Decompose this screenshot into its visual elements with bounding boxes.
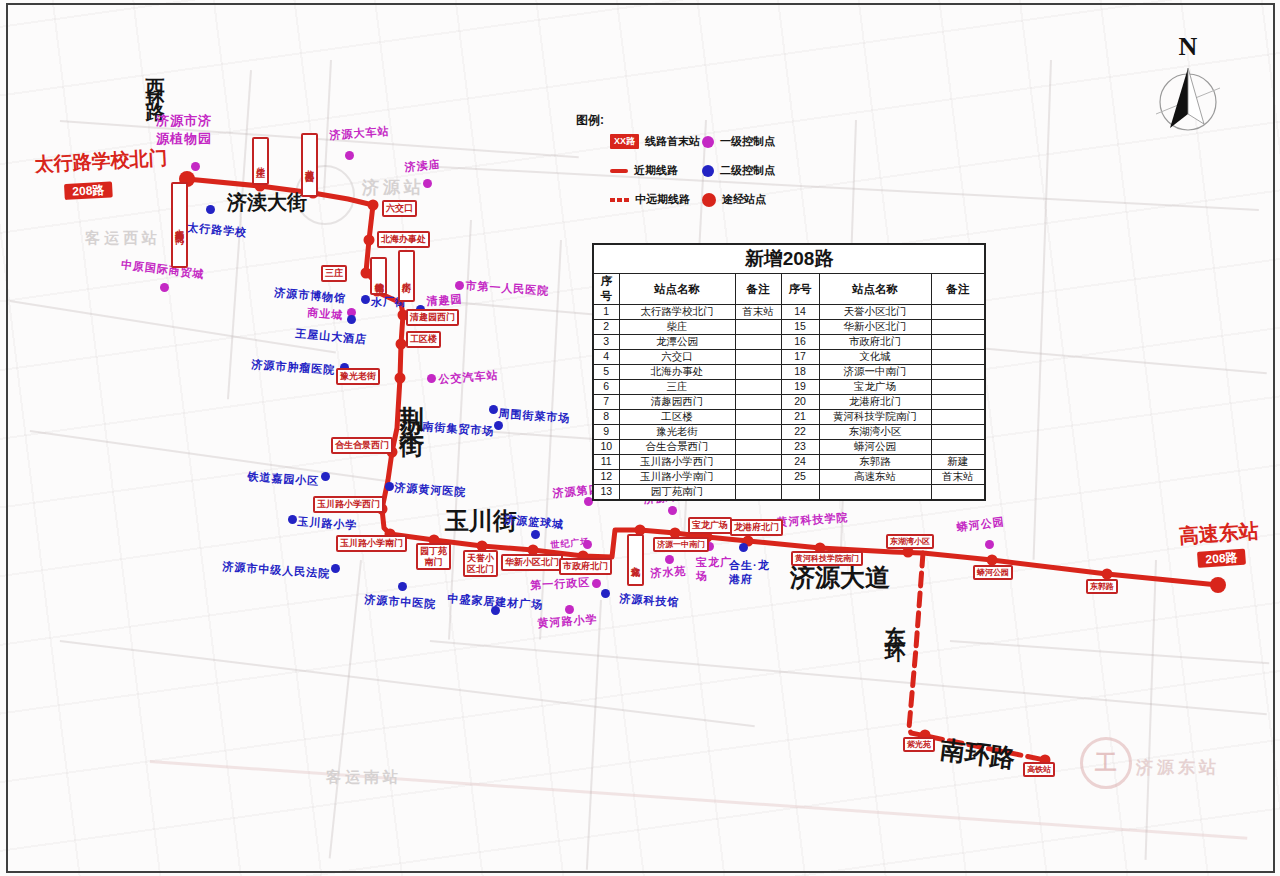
control-point-dot bbox=[345, 151, 354, 160]
station-box: 黄河科技学院南门 bbox=[791, 551, 863, 566]
table-row: 4六交口17文化城 bbox=[593, 350, 985, 365]
street-name: 南环路 bbox=[939, 736, 1017, 771]
table-cell bbox=[931, 380, 985, 395]
table-cell: 13 bbox=[593, 485, 619, 501]
poi-label: 济源黄河医院 bbox=[394, 480, 467, 499]
control-point-dot bbox=[206, 205, 215, 214]
control-point-dot bbox=[489, 405, 498, 414]
control-point-dot bbox=[601, 589, 610, 598]
poi-label: 宝龙广 场 bbox=[696, 555, 732, 584]
table-cell bbox=[931, 365, 985, 380]
street-name: 济渎大街 bbox=[227, 192, 307, 213]
table-cell: 20 bbox=[781, 395, 819, 410]
legend-item-label: 近期线路 bbox=[634, 163, 678, 178]
table-cell bbox=[735, 320, 781, 335]
watermark-text: 客运西站 bbox=[85, 229, 161, 248]
table-cell: 北海办事处 bbox=[619, 365, 735, 380]
poi-label: 合生·龙 港府 bbox=[729, 558, 770, 587]
legend-item: 途经站点 bbox=[702, 192, 766, 207]
dash-segment bbox=[617, 198, 622, 202]
poi-label: 济源市博物馆 bbox=[274, 285, 347, 306]
station-box: 龙潭公园 bbox=[301, 133, 318, 197]
red-dot-symbol bbox=[702, 193, 716, 207]
table-cell: 龙港府北门 bbox=[819, 395, 931, 410]
poi-label: 济源市中医院 bbox=[364, 592, 437, 611]
station-box: 豫光老街 bbox=[336, 368, 380, 385]
table-row: 12玉川路小学南门25高速东站首末站 bbox=[593, 470, 985, 485]
poi-label: 中原国际商贸城 bbox=[120, 257, 205, 281]
table-cell bbox=[735, 425, 781, 440]
station-box: 蟒河公园 bbox=[973, 565, 1013, 580]
control-point-dot bbox=[531, 530, 540, 539]
table-cell: 3 bbox=[593, 335, 619, 350]
poi-label: 商业城 bbox=[307, 305, 344, 322]
station-box: 宝龙广场 bbox=[688, 517, 732, 534]
table-row: 5北海办事处18济源一中南门 bbox=[593, 365, 985, 380]
station-box: 紫光苑 bbox=[903, 737, 935, 752]
table-cell: 21 bbox=[781, 410, 819, 425]
poi-label: 王屋山大酒店 bbox=[295, 326, 368, 347]
poi-label: 济源科技馆 bbox=[619, 591, 680, 609]
poi-label: 世纪广场 bbox=[550, 537, 591, 552]
table-cell: 9 bbox=[593, 425, 619, 440]
street-name: 济源大道 bbox=[790, 564, 890, 590]
table-cell bbox=[931, 395, 985, 410]
control-point-dot bbox=[668, 506, 677, 515]
table-row: 13园丁苑南门 bbox=[593, 485, 985, 501]
station-box: 水厂街 bbox=[398, 250, 415, 302]
table-cell bbox=[931, 485, 985, 501]
poi-label: 周围街菜市场 bbox=[498, 406, 571, 425]
station-box: 市政府北门 bbox=[559, 558, 612, 575]
poi-label: 黄河科技学院 bbox=[776, 510, 849, 529]
dash-segment bbox=[624, 198, 629, 202]
table-cell: 六交口 bbox=[619, 350, 735, 365]
table-cell: 宝龙广场 bbox=[819, 380, 931, 395]
control-point-dot bbox=[455, 281, 464, 290]
table-row: 2柴庄15华新小区北门 bbox=[593, 320, 985, 335]
street-name: 东二环 bbox=[884, 608, 906, 635]
table-cell: 文化城 bbox=[819, 350, 931, 365]
table-cell: 新建 bbox=[931, 455, 985, 470]
table-row: 10合生合景西门23蟒河公园 bbox=[593, 440, 985, 455]
station-box: 东湖湾小区 bbox=[886, 534, 934, 549]
table-cell: 首末站 bbox=[931, 470, 985, 485]
table-header-cell: 备注 bbox=[931, 274, 985, 305]
table-cell: 东郭路 bbox=[819, 455, 931, 470]
control-point-dot bbox=[985, 540, 994, 549]
station-box: 清趣园西门 bbox=[406, 309, 459, 326]
table-header-cell: 备注 bbox=[735, 274, 781, 305]
control-point-dot bbox=[288, 515, 297, 524]
table-cell: 工区楼 bbox=[619, 410, 735, 425]
legend: 图例: XX路线路首末站近期线路中远期线路一级控制点二级控制点途经站点 bbox=[574, 108, 814, 220]
poi-label: 太行路学校 bbox=[187, 220, 248, 239]
poi-label: 济源市肿瘤医院 bbox=[251, 357, 336, 377]
blue-dot-symbol bbox=[702, 165, 714, 177]
control-point-dot bbox=[423, 179, 432, 188]
table-cell bbox=[931, 410, 985, 425]
stops-table: 新增208路 序号站点名称备注序号站点名称备注 1太行路学校北门首末站14天誉小… bbox=[592, 243, 986, 501]
poi-label: 南街集贸市场 bbox=[422, 419, 495, 438]
solid-line-symbol bbox=[610, 169, 628, 173]
table-cell bbox=[735, 335, 781, 350]
control-point-dot bbox=[739, 543, 748, 552]
table-body: 1太行路学校北门首末站14天誉小区北门2柴庄15华新小区北门3龙潭公园16市政府… bbox=[593, 305, 985, 501]
control-point-dot bbox=[665, 555, 674, 564]
table-cell bbox=[735, 440, 781, 455]
table-row: 3龙潭公园16市政府北门 bbox=[593, 335, 985, 350]
table-cell: 7 bbox=[593, 395, 619, 410]
poi-label: 济源市济 源植物园 bbox=[156, 112, 212, 147]
table-cell: 2 bbox=[593, 320, 619, 335]
station-box: 合生合景西门 bbox=[331, 437, 393, 454]
table-cell: 天誉小区北门 bbox=[819, 305, 931, 320]
station-box: 六交口 bbox=[382, 200, 417, 217]
table-cell: 25 bbox=[781, 470, 819, 485]
legend-item: 二级控制点 bbox=[702, 163, 775, 178]
table-cell: 济源一中南门 bbox=[819, 365, 931, 380]
compass: N bbox=[1148, 34, 1228, 144]
table-title: 新增208路 bbox=[593, 244, 985, 274]
table-cell: 8 bbox=[593, 410, 619, 425]
control-point-dot bbox=[191, 162, 200, 171]
table-cell: 15 bbox=[781, 320, 819, 335]
watermark-text: 客运南站 bbox=[326, 768, 402, 787]
street-name: 西环路 bbox=[145, 63, 165, 99]
compass-north-label: N bbox=[1148, 34, 1228, 60]
table-cell: 市政府北门 bbox=[819, 335, 931, 350]
watermark-text: 济源东站 bbox=[1136, 756, 1220, 779]
table-cell: 高速东站 bbox=[819, 470, 931, 485]
poi-label: 蟒河公园 bbox=[956, 514, 1005, 534]
table-header-cell: 序号 bbox=[781, 274, 819, 305]
table-cell bbox=[931, 305, 985, 320]
poi-label: 济源市中级人民法院 bbox=[222, 559, 331, 581]
table-header-cell: 站点名称 bbox=[619, 274, 735, 305]
table-cell: 首末站 bbox=[735, 305, 781, 320]
table-cell: 清趣园西门 bbox=[619, 395, 735, 410]
table-row: 7清趣园西门20龙港府北门 bbox=[593, 395, 985, 410]
street-name: 荆梁街 bbox=[399, 385, 425, 427]
station-box: 博物馆北 bbox=[370, 257, 387, 295]
table-cell bbox=[735, 395, 781, 410]
station-box: 工区楼 bbox=[406, 331, 441, 348]
dash-segment bbox=[610, 198, 615, 202]
terminus-label: 太行路学校北门 bbox=[34, 145, 168, 178]
table-cell: 豫光老街 bbox=[619, 425, 735, 440]
station-box: 龙港府北门 bbox=[730, 519, 783, 536]
table-cell: 合生合景西门 bbox=[619, 440, 735, 455]
station-box: 玉川路小学南门 bbox=[336, 535, 407, 552]
station-box: 文化城 bbox=[627, 534, 644, 586]
table-cell bbox=[735, 365, 781, 380]
table-cell: 22 bbox=[781, 425, 819, 440]
table-row: 1太行路学校北门首末站14天誉小区北门 bbox=[593, 305, 985, 320]
station-box: 三庄 bbox=[321, 265, 347, 282]
table-cell bbox=[931, 440, 985, 455]
control-point-dot bbox=[385, 482, 394, 491]
table-cell: 11 bbox=[593, 455, 619, 470]
table-cell: 18 bbox=[781, 365, 819, 380]
poi-label: 公交汽车站 bbox=[438, 368, 499, 386]
table-cell bbox=[735, 455, 781, 470]
legend-item-label: 途经站点 bbox=[722, 192, 766, 207]
dashed-line-symbol bbox=[610, 198, 629, 202]
poi-label: 清趣园 bbox=[426, 291, 463, 308]
magenta-dot-symbol bbox=[702, 136, 714, 148]
table-cell: 6 bbox=[593, 380, 619, 395]
station-box: 北海办事处 bbox=[377, 231, 430, 248]
poi-label: 市第一人民医院 bbox=[465, 278, 550, 298]
map-canvas: 太行路学校北门柴庄龙潭公园六交口北海办事处三庄博物馆北水厂街清趣园西门工区楼豫光… bbox=[0, 0, 1280, 876]
poi-label: 铁道嘉园小区 bbox=[247, 469, 320, 488]
station-box: 高铁站 bbox=[1023, 762, 1055, 777]
table-cell bbox=[931, 425, 985, 440]
control-point-dot bbox=[347, 315, 356, 324]
table-cell bbox=[735, 380, 781, 395]
table-row: 8工区楼21黄河科技学院南门 bbox=[593, 410, 985, 425]
poi-label: 黄河路小学 bbox=[537, 612, 598, 630]
table-cell: 24 bbox=[781, 455, 819, 470]
table-cell: 16 bbox=[781, 335, 819, 350]
terminus-label: 高速东站 bbox=[1178, 517, 1260, 550]
station-box: 太行路学校北门 bbox=[171, 182, 188, 268]
poi-label: 第一行政区 bbox=[530, 575, 591, 592]
legend-item: XX路线路首末站 bbox=[610, 134, 700, 149]
compass-needle-icon bbox=[1148, 60, 1228, 140]
table-header-row: 序号站点名称备注序号站点名称备注 bbox=[593, 274, 985, 305]
table-cell: 东湖湾小区 bbox=[819, 425, 931, 440]
station-box: 天誉小 区北门 bbox=[463, 550, 498, 577]
station-box: 玉川路小学西门 bbox=[313, 496, 384, 513]
poi-label: 济水苑 bbox=[650, 563, 687, 580]
station-box: 济源一中南门 bbox=[653, 537, 709, 552]
table-cell: 1 bbox=[593, 305, 619, 320]
terminus-box-symbol: XX路 bbox=[610, 134, 639, 149]
control-point-dot bbox=[331, 564, 340, 573]
watermark-text: 济源站 bbox=[362, 176, 425, 199]
control-point-dot bbox=[494, 421, 503, 430]
table-cell: 龙潭公园 bbox=[619, 335, 735, 350]
table-row: 6三庄19宝龙广场 bbox=[593, 380, 985, 395]
table-cell: 10 bbox=[593, 440, 619, 455]
table-cell: 柴庄 bbox=[619, 320, 735, 335]
table-cell bbox=[735, 470, 781, 485]
table-row: 9豫光老街22东湖湾小区 bbox=[593, 425, 985, 440]
table-header-cell: 站点名称 bbox=[819, 274, 931, 305]
control-point-dot bbox=[361, 295, 370, 304]
legend-heading: 图例: bbox=[576, 112, 604, 129]
table-cell: 5 bbox=[593, 365, 619, 380]
table-cell: 黄河科技学院南门 bbox=[819, 410, 931, 425]
control-point-dot bbox=[427, 374, 436, 383]
table-cell bbox=[931, 350, 985, 365]
table-cell bbox=[931, 335, 985, 350]
poi-label: 济渎庙 bbox=[404, 157, 441, 174]
table-cell bbox=[735, 350, 781, 365]
table-cell: 17 bbox=[781, 350, 819, 365]
legend-item-label: 中远期线路 bbox=[635, 192, 690, 207]
poi-label: 玉川路小学 bbox=[297, 514, 358, 532]
station-box: 东郭路 bbox=[1086, 579, 1118, 594]
table-cell: 园丁苑南门 bbox=[619, 485, 735, 501]
table-cell: 玉川路小学南门 bbox=[619, 470, 735, 485]
table-cell: 19 bbox=[781, 380, 819, 395]
table-cell: 12 bbox=[593, 470, 619, 485]
table-cell bbox=[931, 320, 985, 335]
control-point-dot bbox=[398, 582, 407, 591]
control-point-dot bbox=[592, 579, 601, 588]
table-cell bbox=[781, 485, 819, 501]
legend-item: 中远期线路 bbox=[610, 192, 690, 207]
legend-item-label: 线路首末站 bbox=[645, 134, 700, 149]
table-cell: 4 bbox=[593, 350, 619, 365]
control-point-dot bbox=[160, 283, 169, 292]
station-box: 柴庄 bbox=[252, 137, 269, 185]
table-cell bbox=[735, 410, 781, 425]
table-cell: 太行路学校北门 bbox=[619, 305, 735, 320]
legend-item-label: 一级控制点 bbox=[720, 134, 775, 149]
station-box: 园丁苑 南门 bbox=[416, 543, 451, 570]
table-header-cell: 序号 bbox=[593, 274, 619, 305]
table-cell: 三庄 bbox=[619, 380, 735, 395]
table-cell bbox=[735, 485, 781, 501]
station-box: 华新小区北门 bbox=[501, 554, 563, 571]
table-cell: 14 bbox=[781, 305, 819, 320]
legend-item-label: 二级控制点 bbox=[720, 163, 775, 178]
legend-item: 近期线路 bbox=[610, 163, 678, 178]
table-cell: 蟒河公园 bbox=[819, 440, 931, 455]
control-point-dot bbox=[321, 472, 330, 481]
poi-label: 济源大车站 bbox=[329, 124, 390, 142]
route-number-badge: 208路 bbox=[64, 181, 113, 200]
table-cell: 玉川路小学西门 bbox=[619, 455, 735, 470]
table-row: 11玉川路小学西门24东郭路新建 bbox=[593, 455, 985, 470]
table-cell: 华新小区北门 bbox=[819, 320, 931, 335]
table-cell bbox=[819, 485, 931, 501]
route-number-badge: 208路 bbox=[1197, 549, 1246, 569]
table-cell: 23 bbox=[781, 440, 819, 455]
legend-item: 一级控制点 bbox=[702, 134, 775, 149]
